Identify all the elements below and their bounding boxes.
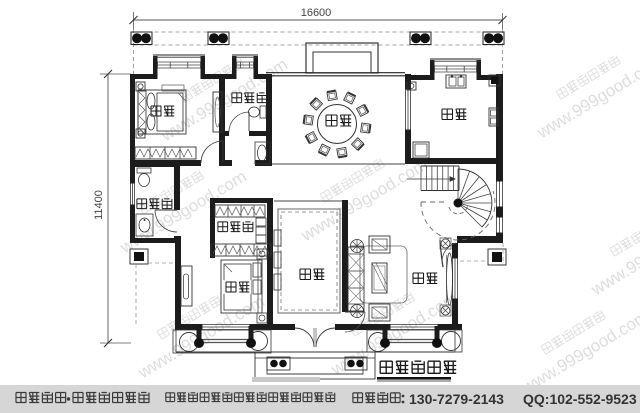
svg-text:130-7279-2143: 130-7279-2143 [409, 391, 504, 407]
svg-text:QQ:102-552-9523: QQ:102-552-9523 [523, 391, 637, 407]
svg-text:16600: 16600 [301, 7, 332, 19]
svg-text:11400: 11400 [93, 190, 105, 220]
